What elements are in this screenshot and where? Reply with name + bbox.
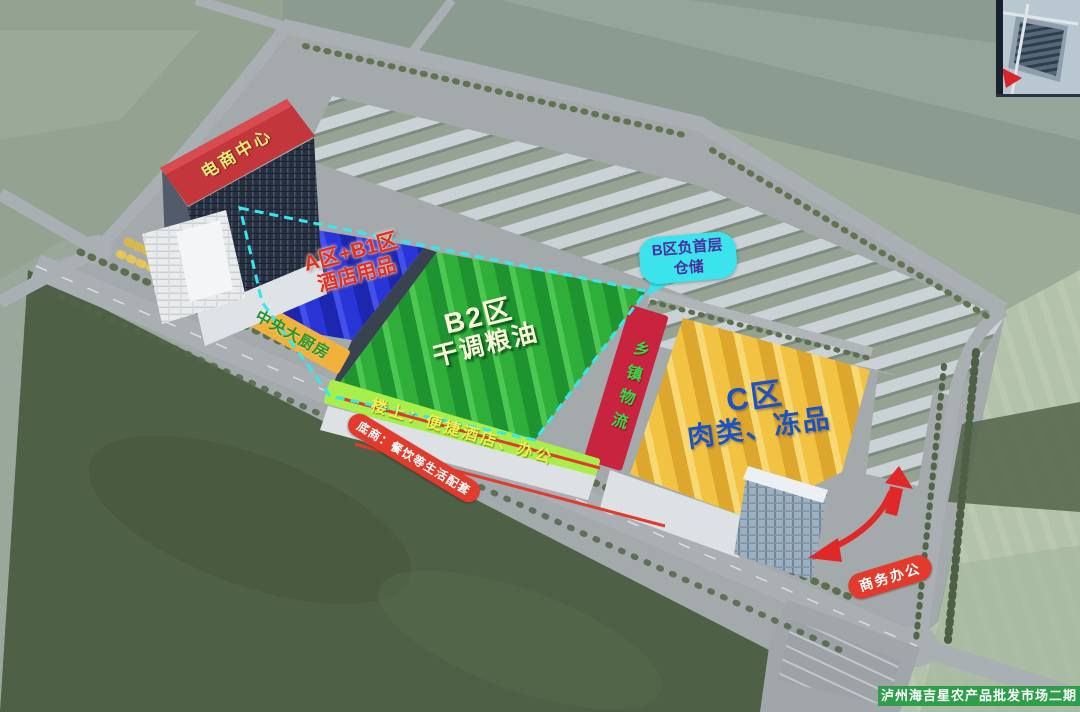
minimap-inset xyxy=(996,0,1080,97)
scene-background xyxy=(0,0,1080,712)
aerial-masterplan: 电商中心 A区+B1区 酒店用品 B2区 干调粮油 B区负首层 仓储 中央大厨房… xyxy=(0,0,1080,712)
project-title-banner: 泸州海吉星农产品批发市场二期 xyxy=(878,686,1080,706)
basement-warehouse-callout: B区负首层 仓储 xyxy=(638,230,739,285)
